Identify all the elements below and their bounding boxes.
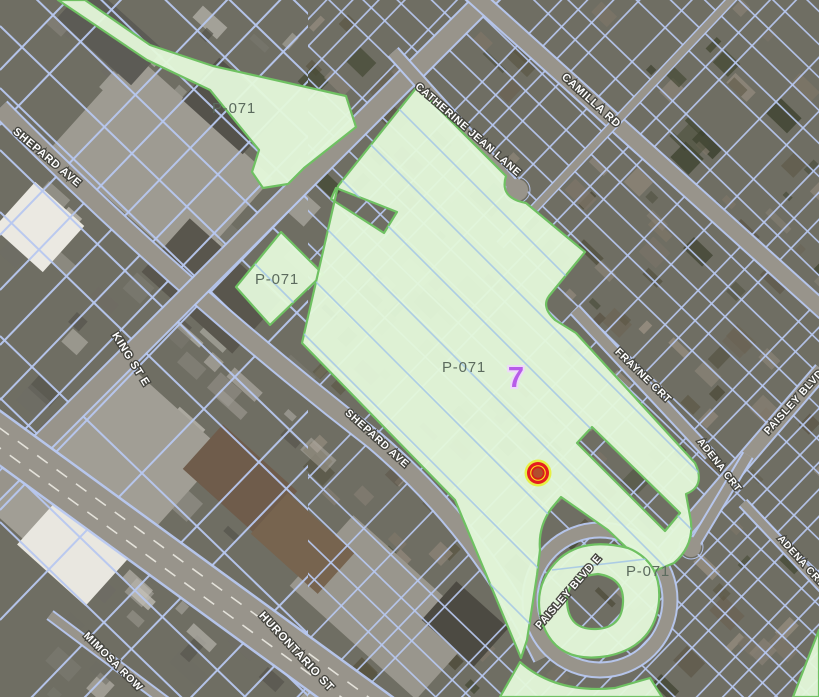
highlighted-zone-number-text: 7 xyxy=(508,362,524,394)
selected-location-marker[interactable] xyxy=(525,460,552,487)
zone-label-parcel-small: P-071 xyxy=(255,271,299,288)
highlighted-zone-number: 7 xyxy=(508,362,524,394)
zone-label-band-northwest: P-071 xyxy=(212,100,256,117)
map-viewport[interactable]: SHEPARD AVEKING ST ECATHERINE JEAN LANEC… xyxy=(0,0,819,697)
zone-label-main: P-071 xyxy=(442,359,486,376)
parcel-map[interactable]: SHEPARD AVEKING ST ECATHERINE JEAN LANEC… xyxy=(0,0,819,697)
zone-label-paisley-loop: P-071 xyxy=(626,563,670,580)
